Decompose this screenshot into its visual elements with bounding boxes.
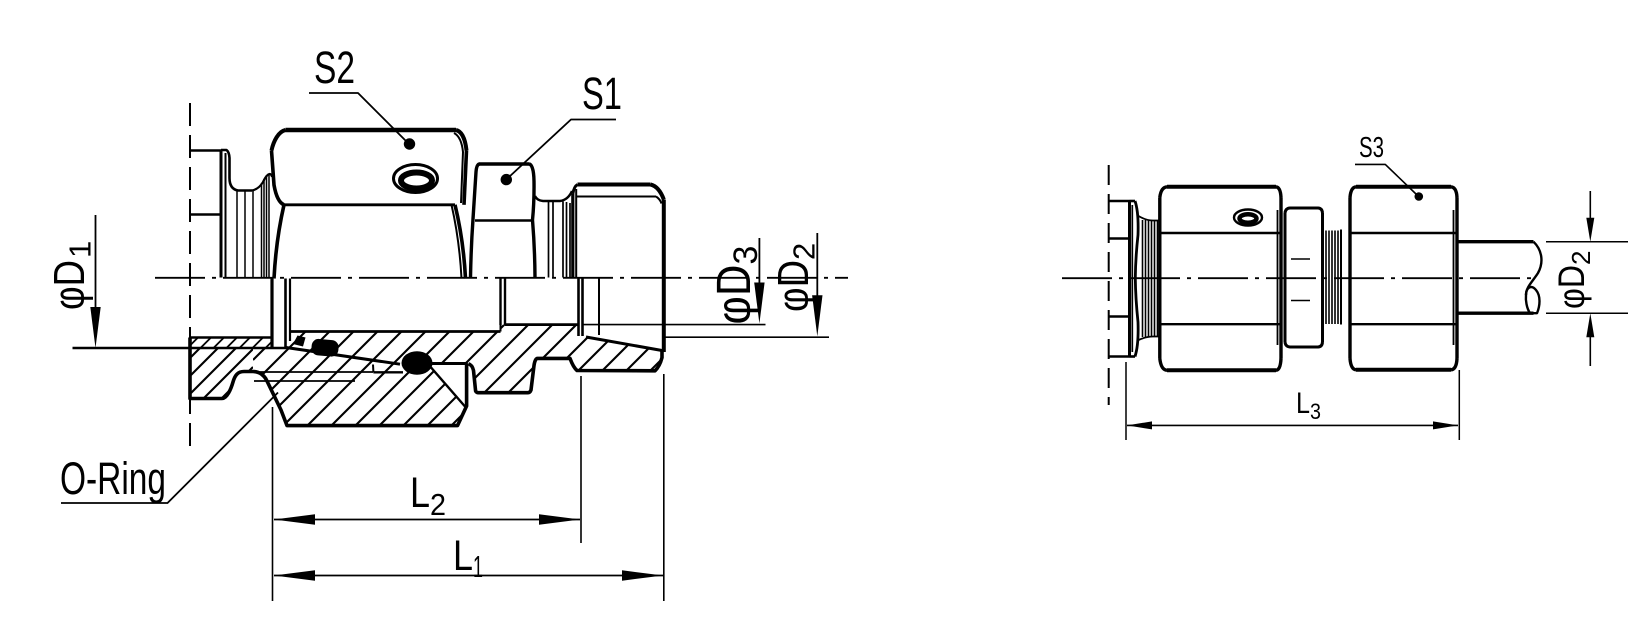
svg-text:L: L [453,532,473,580]
svg-text:O-Ring: O-Ring [60,453,166,504]
svg-text:φD: φD [708,265,761,325]
svg-text:φD: φD [1551,265,1592,309]
svg-text:2: 2 [1566,251,1596,265]
svg-text:S1: S1 [582,68,622,119]
svg-text:3: 3 [1310,399,1321,424]
svg-text:1: 1 [473,549,483,584]
svg-text:L: L [1296,387,1310,420]
svg-text:S2: S2 [314,42,355,93]
svg-text:L: L [410,469,430,517]
svg-text:2: 2 [787,243,822,260]
svg-text:φD: φD [769,260,818,312]
svg-text:1: 1 [63,241,98,258]
svg-text:2: 2 [430,487,446,522]
svg-text:φD: φD [45,260,94,310]
svg-text:S3: S3 [1359,132,1384,164]
